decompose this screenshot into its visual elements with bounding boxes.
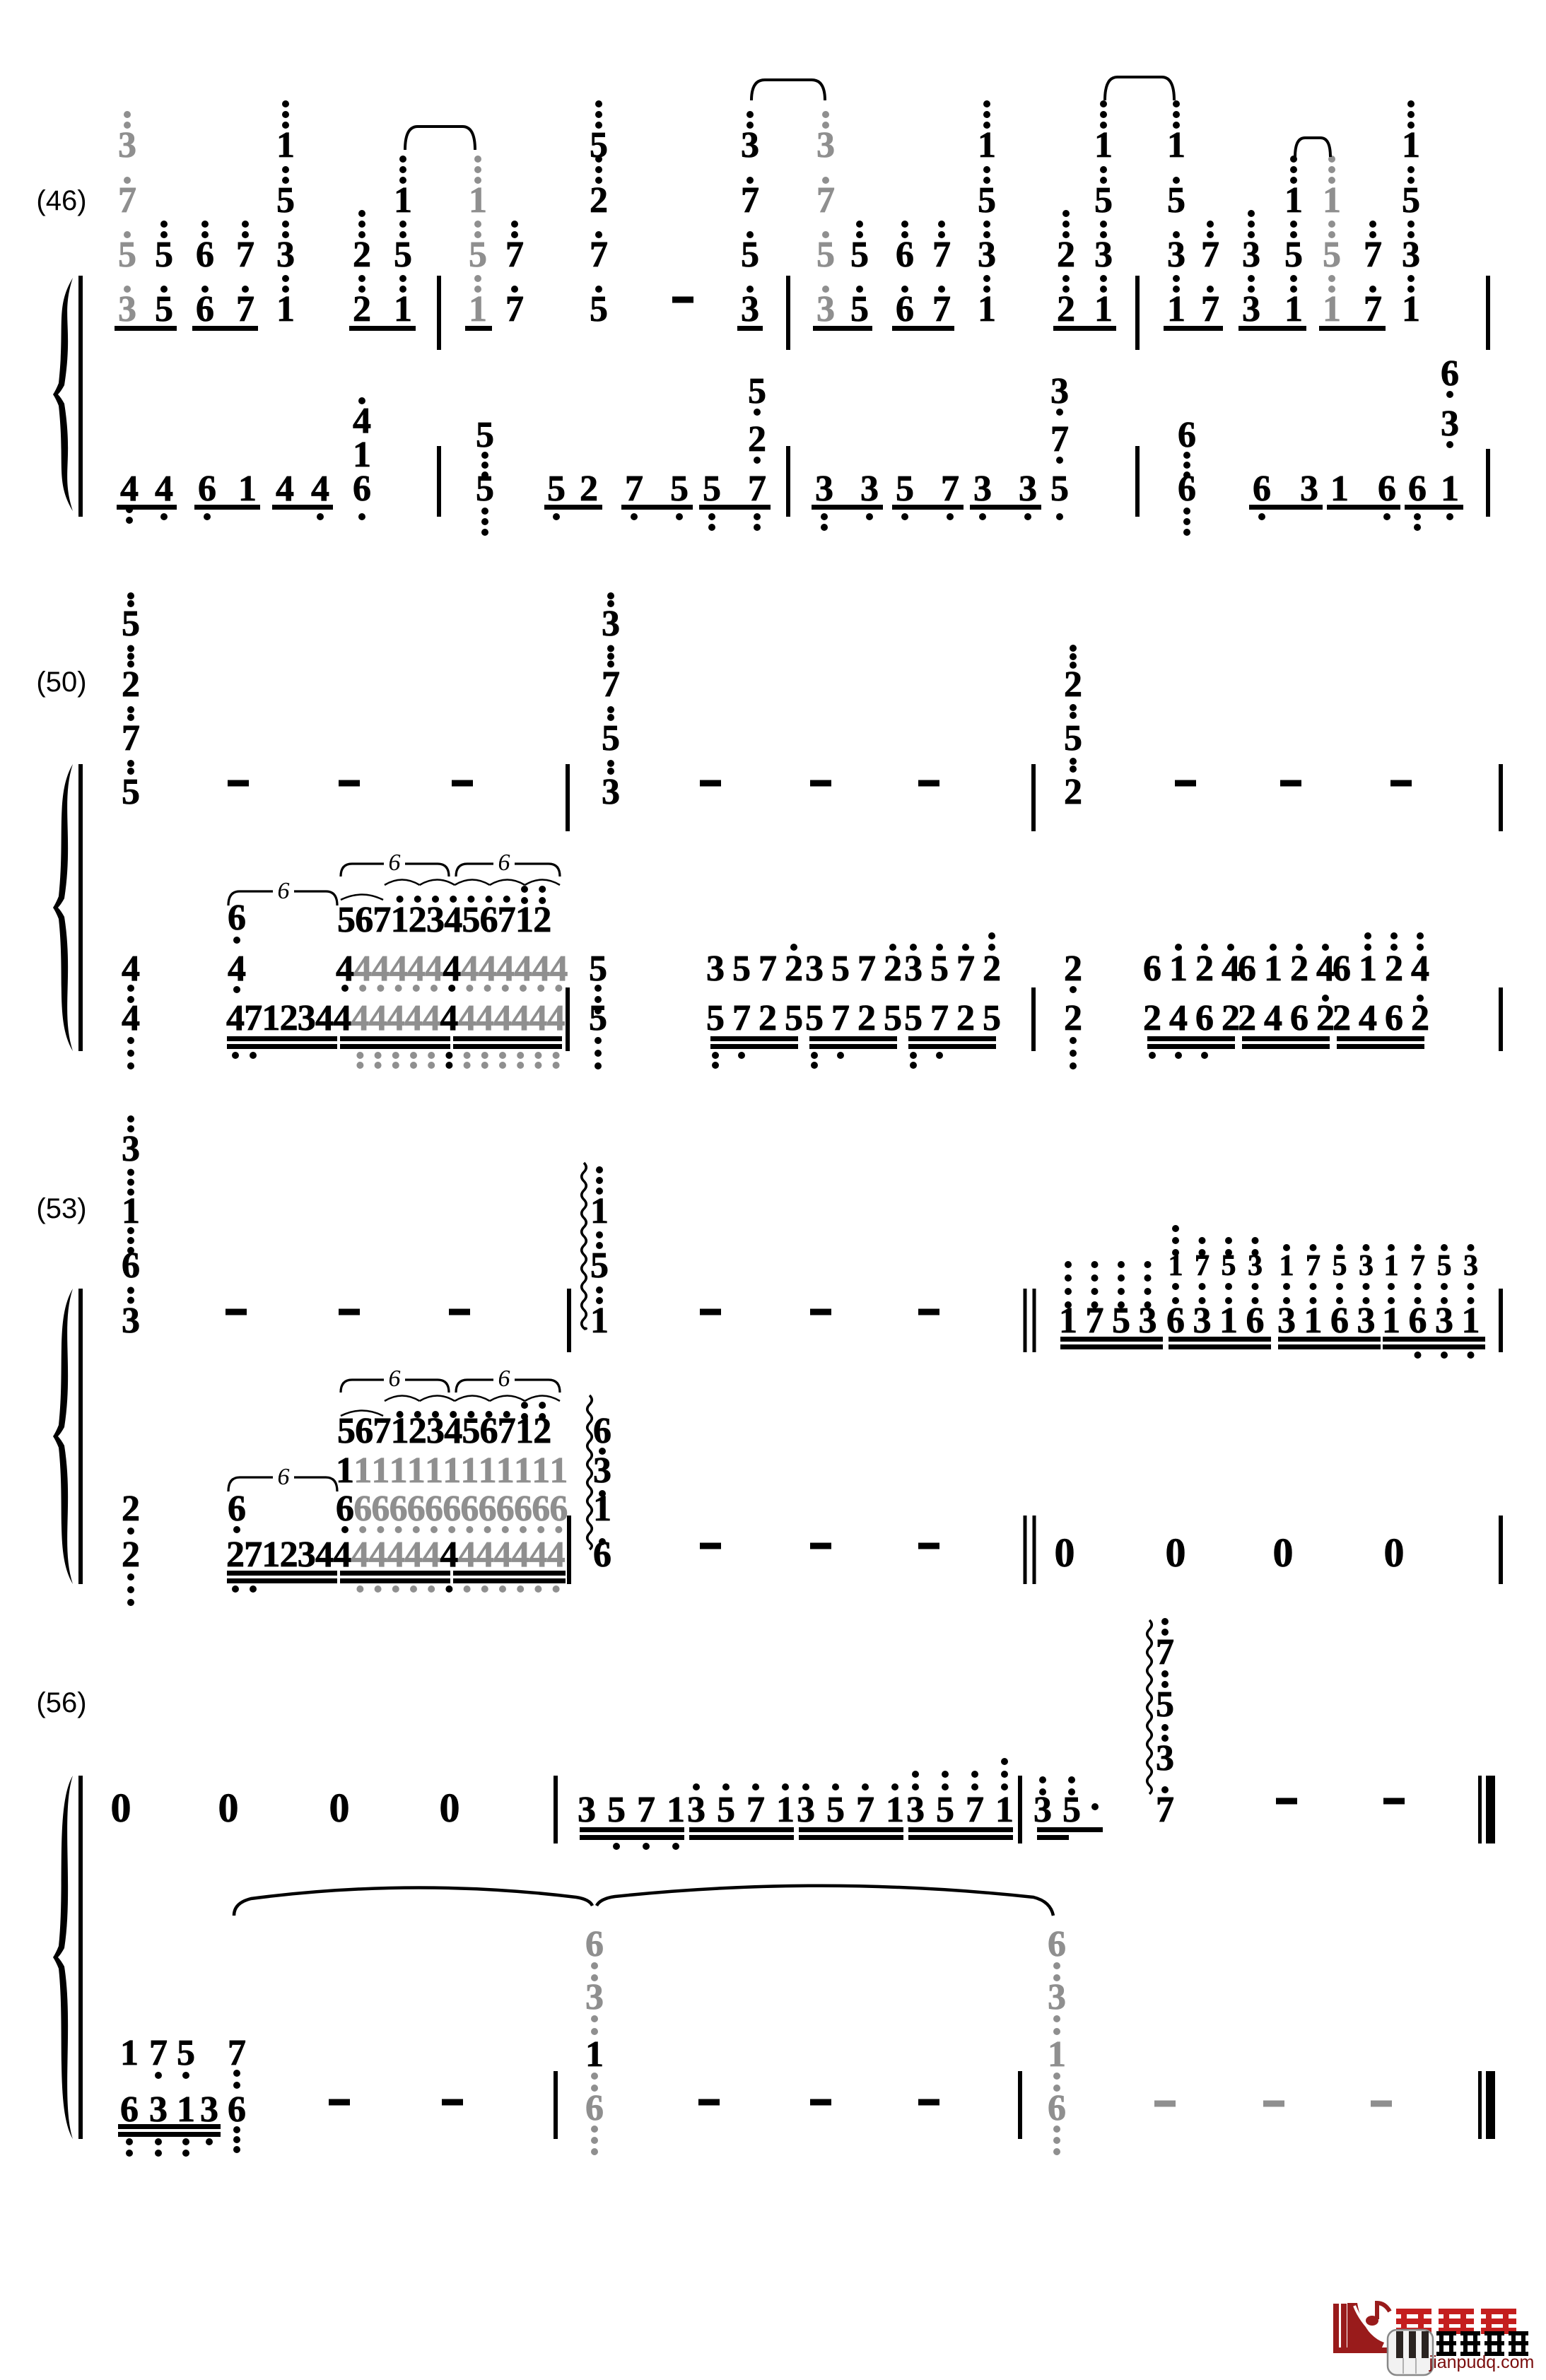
svg-text:1: 1 [1323,289,1341,329]
svg-text:0: 0 [440,1785,460,1831]
svg-text:4: 4 [404,1535,423,1575]
svg-text:4: 4 [371,949,390,989]
svg-text:3: 3 [816,289,835,329]
svg-text:3: 3 [1167,235,1185,275]
svg-text:6: 6 [196,235,214,275]
svg-text:0: 0 [329,1785,350,1831]
svg-text:4: 4 [547,1535,566,1575]
svg-text:3: 3 [122,1301,140,1341]
svg-text:5: 5 [602,718,620,758]
svg-text:4: 4 [440,1535,458,1575]
svg-text:3: 3 [578,1790,596,1830]
svg-text:2: 2 [1238,998,1256,1038]
svg-text:1: 1 [479,1450,497,1491]
svg-text:5: 5 [589,949,607,989]
svg-text:6: 6 [1333,949,1351,989]
svg-text:4: 4 [120,469,139,509]
svg-text:7: 7 [373,1411,391,1451]
svg-text:1: 1 [425,1450,443,1491]
svg-text:3: 3 [149,2089,168,2130]
svg-text:1: 1 [276,125,295,165]
svg-text:5: 5 [590,1245,609,1286]
svg-text:2: 2 [1385,949,1403,989]
svg-text:6: 6 [390,1489,408,1529]
svg-text:2: 2 [983,949,1001,989]
svg-text:7: 7 [831,998,850,1038]
svg-text:6: 6 [1408,469,1427,509]
svg-text:1: 1 [590,1191,609,1231]
svg-text:2: 2 [353,289,371,329]
svg-text:5: 5 [816,235,835,275]
svg-text:2: 2 [884,949,902,989]
svg-text:6: 6 [585,1924,604,1964]
svg-text:3: 3 [1441,404,1459,444]
svg-text:1: 1 [262,998,280,1038]
svg-text:2: 2 [533,900,551,940]
svg-text:1: 1 [1048,2034,1066,2075]
svg-text:0: 0 [1384,1530,1405,1576]
svg-text:7: 7 [956,949,975,989]
svg-text:0: 0 [1166,1530,1186,1576]
svg-text:6: 6 [1441,353,1459,394]
svg-text:3: 3 [276,235,295,275]
svg-text:3: 3 [815,469,833,509]
svg-text:1: 1 [886,1790,904,1830]
svg-text:6: 6 [549,1489,568,1529]
svg-text:7: 7 [941,469,959,509]
svg-text:4: 4 [440,998,458,1038]
svg-text:2: 2 [748,419,766,459]
svg-text:6: 6 [1048,2088,1066,2128]
svg-text:5: 5 [177,2033,195,2073]
svg-text:1: 1 [1382,1301,1400,1341]
svg-text:5: 5 [155,289,173,329]
svg-text:(50): (50) [36,667,86,698]
svg-text:4: 4 [422,1535,440,1575]
svg-text:2: 2 [956,998,975,1038]
svg-text:4: 4 [460,949,479,989]
svg-text:5: 5 [469,235,487,275]
svg-text:5: 5 [590,289,608,329]
svg-text:4: 4 [387,1535,405,1575]
svg-text:5: 5 [1284,235,1303,275]
svg-text:7: 7 [602,664,620,705]
svg-text:7: 7 [373,900,391,940]
svg-text:2: 2 [1143,998,1161,1038]
svg-text:1: 1 [394,180,412,221]
svg-text:6: 6 [355,1411,373,1451]
svg-text:4: 4 [514,949,532,989]
svg-text:6: 6 [1253,469,1271,509]
svg-text:7: 7 [118,180,136,221]
svg-text:4: 4 [315,998,334,1038]
svg-text:4: 4 [529,998,547,1038]
svg-text:5: 5 [732,949,751,989]
svg-text:1: 1 [1284,289,1303,329]
svg-text:1: 1 [1284,180,1303,221]
svg-text:7: 7 [1364,289,1382,329]
svg-text:3: 3 [687,1790,705,1830]
svg-text:5: 5 [896,469,914,509]
svg-text:5: 5 [748,371,766,411]
svg-text:1: 1 [353,1450,372,1491]
svg-text:4: 4 [276,469,294,509]
svg-text:4: 4 [387,998,405,1038]
svg-text:1: 1 [1384,1250,1399,1282]
svg-text:4: 4 [369,998,387,1038]
svg-text:0: 0 [1273,1530,1294,1576]
svg-text:1: 1 [1169,949,1188,989]
svg-text:6: 6 [1178,469,1196,509]
svg-text:2: 2 [1064,772,1082,812]
svg-text:7: 7 [590,235,608,275]
svg-text:6: 6 [1143,949,1161,989]
svg-text:7: 7 [1410,1250,1425,1282]
svg-text:6: 6 [1166,1301,1185,1341]
svg-text:4: 4 [529,1535,547,1575]
svg-text:3: 3 [602,604,620,644]
svg-text:3: 3 [298,998,316,1038]
svg-text:1: 1 [276,289,295,329]
svg-text:6: 6 [480,900,498,940]
svg-text:4: 4 [444,900,462,940]
svg-text:1: 1 [469,180,487,221]
svg-text:4: 4 [511,998,529,1038]
svg-text:7: 7 [244,998,262,1038]
svg-text:7: 7 [966,1790,984,1830]
svg-text:5: 5 [1437,1250,1452,1282]
svg-text:3: 3 [741,125,759,165]
svg-text:1: 1 [1279,1250,1294,1282]
svg-text:3: 3 [1050,371,1069,411]
svg-text:4: 4 [511,1535,529,1575]
svg-text:7: 7 [1156,1790,1174,1830]
svg-text:6: 6 [1246,1301,1265,1341]
svg-text:(46): (46) [36,185,86,216]
svg-text:2: 2 [1064,949,1082,989]
svg-text:7: 7 [149,2033,168,2073]
svg-text:3: 3 [1463,1250,1478,1282]
svg-text:5: 5 [1402,180,1420,221]
svg-text:1: 1 [1462,1301,1480,1341]
svg-text:4: 4 [226,998,245,1038]
svg-text:5: 5 [1156,1684,1174,1725]
svg-text:1: 1 [593,1489,611,1529]
svg-text:5: 5 [1094,180,1113,221]
svg-text:7: 7 [236,289,254,329]
svg-text:1: 1 [532,1450,550,1491]
svg-text:3: 3 [1300,469,1318,509]
svg-text:4: 4 [1359,998,1377,1038]
svg-text:7: 7 [1156,1632,1174,1672]
svg-text:6: 6 [1048,1924,1066,1964]
svg-text:4: 4 [422,998,440,1038]
svg-text:7: 7 [1201,235,1219,275]
svg-text:5: 5 [884,998,902,1038]
svg-text:5: 5 [1062,1790,1081,1830]
svg-text:3: 3 [585,1977,604,2017]
svg-text:1: 1 [1323,180,1341,221]
svg-text:7: 7 [732,998,751,1038]
svg-text:5: 5 [930,949,949,989]
svg-text:6: 6 [425,1489,443,1529]
svg-text:6: 6 [1385,998,1403,1038]
svg-text:5: 5 [717,1790,735,1830]
svg-text:4: 4 [351,1535,369,1575]
svg-text:2: 2 [1057,235,1075,275]
svg-text:1: 1 [549,1450,568,1491]
svg-text:7: 7 [932,235,951,275]
svg-text:4: 4 [493,998,512,1038]
svg-text:1: 1 [390,1450,408,1491]
svg-text:7: 7 [748,469,766,509]
svg-text:5: 5 [276,180,295,221]
svg-text:5: 5 [589,998,607,1038]
svg-text:2: 2 [409,900,427,940]
svg-text:4: 4 [407,949,426,989]
svg-text:6: 6 [1378,469,1396,509]
svg-text:3: 3 [1435,1301,1453,1341]
svg-text:6: 6 [1178,415,1196,455]
svg-text:1: 1 [776,1790,795,1830]
svg-text:6: 6 [278,878,290,904]
svg-text:2: 2 [1195,949,1214,989]
svg-text:1: 1 [1167,289,1185,329]
svg-text:6: 6 [514,1489,532,1529]
svg-text:5: 5 [706,998,725,1038]
svg-text:1: 1 [460,1450,479,1491]
svg-text:2: 2 [785,949,803,989]
svg-text:4: 4 [390,949,408,989]
svg-text:7: 7 [236,235,254,275]
svg-text:1: 1 [469,289,487,329]
svg-text:4: 4 [351,998,369,1038]
svg-text:6: 6 [389,1366,401,1392]
svg-text:5: 5 [850,235,869,275]
svg-text:5: 5 [703,469,721,509]
svg-text:4: 4 [476,1535,494,1575]
svg-text:1: 1 [336,1450,354,1491]
svg-text:2: 2 [857,998,876,1038]
svg-text:1: 1 [1094,289,1113,329]
svg-text:3: 3 [906,1790,925,1830]
svg-text:4: 4 [311,469,329,509]
svg-text:4: 4 [228,949,246,989]
svg-text:5: 5 [337,900,356,940]
svg-text:1: 1 [1219,1301,1238,1341]
svg-text:4: 4 [479,949,497,989]
svg-text:1: 1 [177,2089,195,2130]
svg-text:4: 4 [458,1535,476,1575]
svg-text:2: 2 [122,1489,140,1529]
svg-text:1: 1 [407,1450,426,1491]
svg-text:2: 2 [759,998,777,1038]
svg-text:7: 7 [244,1535,262,1575]
svg-text:1: 1 [262,1535,280,1575]
svg-text:6: 6 [228,1489,246,1529]
svg-text:2: 2 [353,235,371,275]
svg-text:4: 4 [496,949,515,989]
svg-text:6: 6 [353,469,371,509]
svg-text:3: 3 [978,235,996,275]
svg-text:3: 3 [122,1129,140,1169]
svg-text:6: 6 [1290,998,1308,1038]
svg-text:1: 1 [590,1301,609,1341]
svg-text:1: 1 [120,2033,139,2073]
svg-text:6: 6 [1238,949,1256,989]
svg-text:3: 3 [118,289,136,329]
svg-text:3: 3 [805,949,824,989]
svg-text:5: 5 [155,235,173,275]
svg-text:4: 4 [1264,998,1282,1038]
svg-text:1: 1 [1167,125,1185,165]
svg-text:4: 4 [458,998,476,1038]
svg-text:3: 3 [1033,1790,1052,1830]
svg-text:5: 5 [547,469,566,509]
svg-text:1: 1 [1359,949,1377,989]
svg-text:6: 6 [1330,1301,1349,1341]
svg-text:5: 5 [785,998,803,1038]
svg-text:3: 3 [1156,1738,1174,1778]
svg-text:6: 6 [496,1489,515,1529]
svg-text:6: 6 [532,1489,550,1529]
svg-text:3: 3 [1193,1301,1212,1341]
svg-text:5: 5 [476,469,494,509]
svg-text:7: 7 [637,1790,655,1830]
svg-text:1: 1 [122,1191,140,1231]
svg-text:3: 3 [797,1790,815,1830]
svg-text:4: 4 [532,949,550,989]
svg-text:(56): (56) [36,1687,86,1718]
svg-text:7: 7 [228,2033,246,2073]
svg-text:4: 4 [122,998,140,1038]
svg-text:6: 6 [278,1464,290,1490]
svg-text:6: 6 [228,2089,246,2130]
svg-text:6: 6 [198,469,216,509]
svg-text:4: 4 [476,998,494,1038]
svg-text:6: 6 [498,1366,510,1392]
svg-text:6: 6 [896,235,914,275]
svg-text:4: 4 [315,1535,334,1575]
svg-text:0: 0 [1055,1530,1075,1576]
svg-text:1: 1 [394,289,412,329]
svg-text:7: 7 [930,998,949,1038]
svg-text:6: 6 [498,850,510,876]
svg-text:4: 4 [1411,949,1429,989]
svg-text:3: 3 [1094,235,1113,275]
svg-text:5: 5 [1333,1250,1347,1282]
svg-text:3: 3 [1048,1977,1066,2017]
svg-text:7: 7 [746,1790,765,1830]
svg-text:1: 1 [585,2034,604,2075]
svg-text:7: 7 [759,949,777,989]
svg-text:2: 2 [1064,998,1082,1038]
svg-text:7: 7 [498,900,516,940]
svg-text:5: 5 [118,235,136,275]
svg-text:3: 3 [1242,289,1260,329]
svg-text:1: 1 [1094,125,1113,165]
svg-text:0: 0 [218,1785,239,1831]
svg-text:7: 7 [816,180,835,221]
svg-text:7: 7 [505,289,524,329]
svg-text:4: 4 [425,949,443,989]
svg-text:4: 4 [1169,998,1188,1038]
svg-text:6: 6 [593,1411,611,1451]
svg-text:3: 3 [1019,469,1037,509]
svg-text:3: 3 [706,949,725,989]
svg-text:5: 5 [1323,235,1341,275]
svg-text:7: 7 [857,949,876,989]
svg-text:3: 3 [1242,235,1260,275]
svg-text:1: 1 [238,469,257,509]
svg-text:7: 7 [741,180,759,221]
svg-text:4: 4 [404,998,423,1038]
svg-text:1: 1 [995,1790,1014,1830]
svg-text:1: 1 [978,125,996,165]
svg-text:1: 1 [667,1790,685,1830]
svg-text:5: 5 [122,604,140,644]
svg-text:6: 6 [585,2088,604,2128]
svg-text:5: 5 [826,1790,845,1830]
svg-text:7: 7 [1201,289,1219,329]
svg-text:6: 6 [353,1489,372,1529]
svg-text:3: 3 [118,125,136,165]
svg-text:1: 1 [515,900,534,940]
svg-text:2: 2 [280,998,298,1038]
svg-text:3: 3 [860,469,879,509]
svg-text:5: 5 [904,998,923,1038]
svg-text:1: 1 [1402,289,1420,329]
svg-text:2: 2 [1333,998,1351,1038]
svg-text:1: 1 [391,900,409,940]
svg-text:4: 4 [333,1535,351,1575]
svg-text:7: 7 [932,289,951,329]
svg-text:3: 3 [904,949,923,989]
svg-text:5: 5 [805,998,824,1038]
svg-text:7: 7 [122,718,140,758]
svg-text:4: 4 [493,1535,512,1575]
svg-text:3: 3 [298,1535,316,1575]
svg-text:5: 5 [462,900,480,940]
svg-text:5: 5 [850,289,869,329]
svg-text:5: 5 [1167,180,1185,221]
svg-text:5: 5 [337,1411,356,1451]
svg-text:6: 6 [593,1535,611,1575]
svg-text:2: 2 [280,1535,298,1575]
svg-text:5: 5 [607,1790,626,1830]
svg-text:1: 1 [1441,469,1459,509]
svg-text:1: 1 [514,1450,532,1491]
svg-text:3: 3 [1357,1301,1376,1341]
svg-text:6: 6 [336,1489,354,1529]
svg-text:7: 7 [1050,419,1069,459]
svg-text:5: 5 [394,235,412,275]
svg-text:6: 6 [389,850,401,876]
svg-text:1: 1 [1264,949,1282,989]
svg-text:5: 5 [936,1790,954,1830]
svg-text:6: 6 [371,1489,390,1529]
svg-text:6: 6 [479,1489,497,1529]
svg-text:6: 6 [1195,998,1214,1038]
svg-text:5: 5 [1050,469,1069,509]
svg-text:2: 2 [1411,998,1429,1038]
svg-text:3: 3 [1359,1250,1374,1282]
svg-text:2: 2 [580,469,598,509]
svg-text:3: 3 [593,1450,611,1491]
svg-text:6: 6 [196,289,214,329]
svg-text:2: 2 [122,1535,140,1575]
svg-text:5: 5 [741,235,759,275]
